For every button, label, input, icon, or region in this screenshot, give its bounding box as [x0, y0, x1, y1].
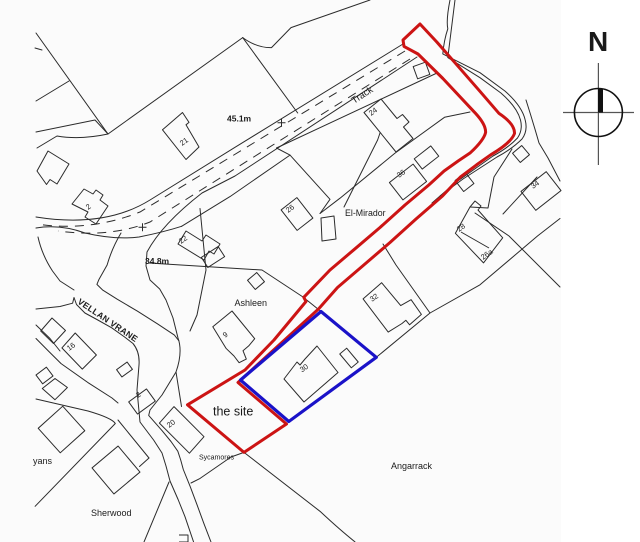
svg-text:El-Mirador: El-Mirador	[345, 208, 386, 218]
svg-text:34.8m: 34.8m	[145, 256, 170, 266]
svg-text:Sycamores: Sycamores	[199, 455, 235, 462]
svg-text:Ashleen: Ashleen	[235, 298, 268, 308]
svg-text:Sherwood: Sherwood	[91, 508, 132, 518]
svg-text:the site: the site	[213, 405, 253, 419]
svg-text:Angarrack: Angarrack	[391, 461, 433, 471]
svg-text:yans: yans	[33, 456, 53, 466]
svg-text:N: N	[588, 26, 608, 57]
svg-text:45.1m: 45.1m	[227, 114, 252, 124]
